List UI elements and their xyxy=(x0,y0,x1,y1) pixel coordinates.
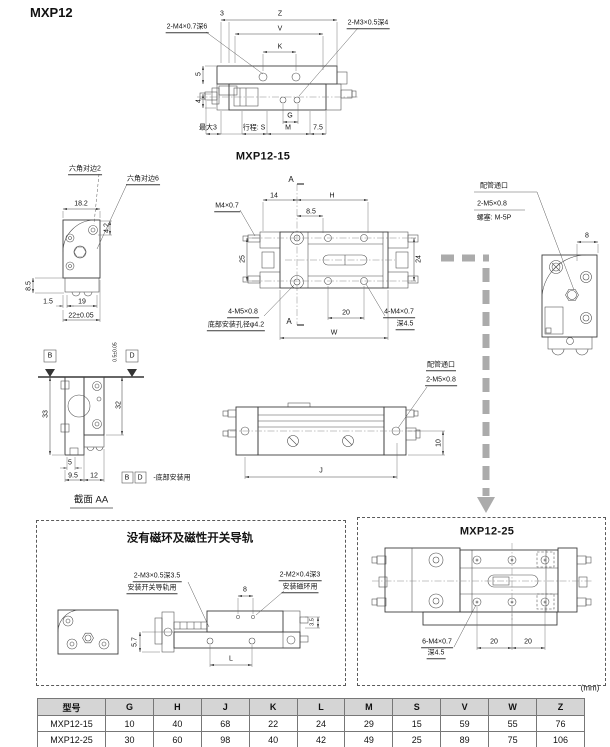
value-cell: 42 xyxy=(297,732,345,747)
dim-g: G xyxy=(287,113,292,120)
table-header-row: 型号 G H J K L M S V W Z xyxy=(38,699,585,716)
section-a-top: A xyxy=(288,176,293,184)
value-cell: 55 xyxy=(489,716,537,732)
dim-12: 12 xyxy=(90,473,98,480)
piping-port-note: 配管通口 xyxy=(480,183,508,190)
no-magnet-view-drawing xyxy=(58,582,320,667)
dim-l: L xyxy=(229,656,233,663)
dim-m: M xyxy=(285,125,291,132)
dim-25: 25 xyxy=(240,255,247,263)
dim-8-port: 8 xyxy=(585,233,589,240)
dim-5: 5 xyxy=(196,72,203,76)
dim-z: Z xyxy=(278,11,282,18)
dim-24: 24 xyxy=(416,255,423,263)
no-magnet-box-title: 没有磁环及磁性开关导轨 xyxy=(127,533,254,545)
column-header: Z xyxy=(537,699,585,716)
dim-k: K xyxy=(278,44,283,51)
datasheet-page: MXP12 3 Z V K 2-M4×0.7深6 2-M3×0.5深4 5 4 … xyxy=(0,0,610,747)
dim-3: 3 xyxy=(220,11,224,18)
dim-tolerance: 0.5±0.05 xyxy=(114,342,119,361)
dim-7-5: 7.5 xyxy=(313,125,323,132)
value-cell: 89 xyxy=(441,732,489,747)
value-cell: 15 xyxy=(393,716,441,732)
dim-5-7: 5.7 xyxy=(132,637,139,647)
hex-flats-6-note: 六角对边6 xyxy=(126,175,160,185)
dim-14: 14 xyxy=(270,193,278,200)
column-header: V xyxy=(441,699,489,716)
value-cell: 76 xyxy=(537,716,585,732)
section-caption: 截面 AA xyxy=(74,495,108,505)
dim-h: H xyxy=(329,193,334,200)
dim-w: W xyxy=(331,330,338,337)
column-header: L xyxy=(297,699,345,716)
depth-4-5-note: 深4.5 xyxy=(396,320,415,330)
dim-4-2: 4.2 xyxy=(104,223,111,233)
side-view-drawing xyxy=(223,387,445,479)
datum-d-marker: D xyxy=(129,353,134,360)
datum-b-marker: B xyxy=(48,353,53,360)
thread-6-m4-note: 6-M4×0.7 xyxy=(421,638,453,648)
table-row: MXP12-25 30 60 98 40 42 49 25 89 75 106 xyxy=(38,732,585,747)
dim-10: 10 xyxy=(436,439,443,447)
dim-3-5: 3.5 xyxy=(310,618,316,626)
column-header: J xyxy=(201,699,249,716)
unit-note: (mm) xyxy=(581,684,600,693)
hex-flats-2-note: 六角对边2 xyxy=(68,165,102,175)
dim-19: 19 xyxy=(78,299,86,306)
dim-5-section: 5 xyxy=(68,460,72,467)
value-cell: 30 xyxy=(106,732,154,747)
dim-32: 32 xyxy=(116,401,123,409)
mxp25-caption: MXP12-25 xyxy=(460,527,514,538)
value-cell: 24 xyxy=(297,716,345,732)
dim-8-5-left: 8.5 xyxy=(26,281,33,291)
section-aa-drawing xyxy=(38,350,146,508)
depth-note-25: 深4.5 xyxy=(427,649,446,659)
thread-bottom-note: 4-M5×0.8 xyxy=(227,308,259,318)
dim-1-5: 1.5 xyxy=(43,299,53,306)
bottom-mount-note: -底部安装用 xyxy=(153,475,190,482)
top-view-drawing xyxy=(197,20,358,134)
dim-33: 33 xyxy=(43,410,50,418)
value-cell: 29 xyxy=(345,716,393,732)
magnet-thread-note: 2-M2×0.4深3 xyxy=(279,571,322,581)
dim-stroke-s: 行程: S xyxy=(243,125,266,132)
column-header: H xyxy=(153,699,201,716)
port-thread-note-2: 2-M5×0.8 xyxy=(425,376,457,386)
switch-rail-use-note: 安装开关导轨用 xyxy=(127,584,178,594)
value-cell: 59 xyxy=(441,716,489,732)
model-cell: MXP12-15 xyxy=(38,716,106,732)
page-title: MXP12 xyxy=(30,5,73,20)
value-cell: 40 xyxy=(153,716,201,732)
value-cell: 75 xyxy=(489,732,537,747)
mxp25-view-drawing xyxy=(372,543,592,650)
switch-rail-thread-note: 2-M3×0.5深3.5 xyxy=(133,572,182,582)
magnet-use-note: 安装磁环用 xyxy=(282,583,319,593)
dim-22: 22±0.05 xyxy=(68,313,93,320)
dim-20-a: 20 xyxy=(490,639,498,646)
thread-m4-note: M4×0.7 xyxy=(214,202,240,212)
dim-20-b: 20 xyxy=(524,639,532,646)
plug-note: 螺塞: M-5P xyxy=(477,215,512,222)
dim-max3: 最大3 xyxy=(199,125,217,132)
thread-note-left: 2-M4×0.7深6 xyxy=(166,23,209,33)
dim-j: J xyxy=(319,468,323,475)
value-cell: 68 xyxy=(201,716,249,732)
table-row: MXP12-15 10 40 68 22 24 29 15 59 55 76 xyxy=(38,716,585,732)
note-d-marker: D xyxy=(137,475,142,482)
value-cell: 10 xyxy=(106,716,154,732)
column-header: W xyxy=(489,699,537,716)
dim-9-5: 9.5 xyxy=(68,473,78,480)
column-header: G xyxy=(106,699,154,716)
port-thread-note: 2-M5×0.8 xyxy=(477,201,507,208)
top-view-caption: MXP12-15 xyxy=(236,152,290,163)
column-header: M xyxy=(345,699,393,716)
technical-drawing-canvas xyxy=(0,0,610,747)
value-cell: 40 xyxy=(249,732,297,747)
column-header: 型号 xyxy=(38,699,106,716)
thread-note-right: 2-M3×0.5深4 xyxy=(347,19,390,29)
value-cell: 25 xyxy=(393,732,441,747)
note-b-marker: B xyxy=(125,475,130,482)
value-cell: 98 xyxy=(201,732,249,747)
dim-4: 4 xyxy=(196,99,203,103)
section-a-bottom: A xyxy=(286,318,291,326)
piping-port-note-2: 配管通口 xyxy=(426,361,456,371)
column-header: K xyxy=(249,699,297,716)
dim-18-2: 18.2 xyxy=(74,201,88,208)
value-cell: 22 xyxy=(249,716,297,732)
dim-8-5-main: 8.5 xyxy=(306,209,316,216)
model-cell: MXP12-25 xyxy=(38,732,106,747)
thread-right-note: 4-M4×0.7 xyxy=(383,308,415,318)
value-cell: 60 xyxy=(153,732,201,747)
dim-8-box: 8 xyxy=(243,587,247,594)
dimension-table: 型号 G H J K L M S V W Z MXP12-15 10 40 68… xyxy=(37,698,585,747)
value-cell: 49 xyxy=(345,732,393,747)
bottom-hole-note: 底部安装孔径φ4.2 xyxy=(207,321,265,331)
value-cell: 106 xyxy=(537,732,585,747)
column-header: S xyxy=(393,699,441,716)
dim-20-main: 20 xyxy=(342,310,350,317)
dim-v: V xyxy=(278,26,283,33)
